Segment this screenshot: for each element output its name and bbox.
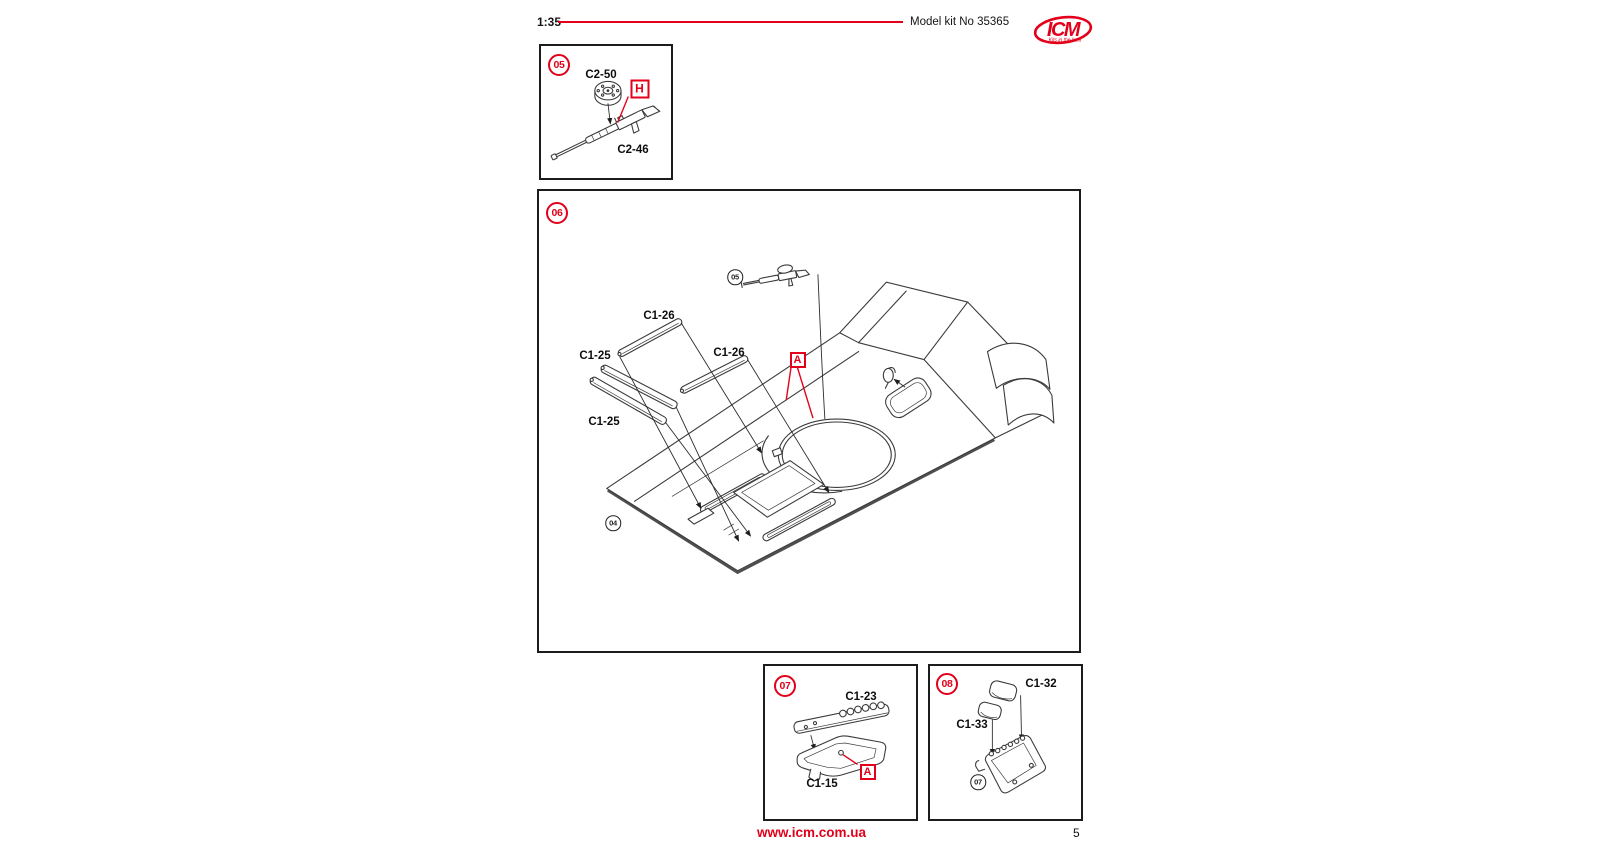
machine-gun-part — [548, 99, 663, 170]
step-number-badge-07: 07 — [774, 675, 796, 697]
part-label-c1-32: C1-32 — [1025, 678, 1056, 690]
step-08-panel: 08 C1-32 C1-33 07 — [928, 664, 1083, 821]
strip-part-c1-26-right — [679, 355, 749, 395]
part-label-c1-26-top: C1-26 — [643, 310, 674, 322]
assembly-arrow — [608, 103, 610, 123]
option-marker-a: A — [790, 352, 806, 368]
step-05-panel: 05 C2-50 H C2-46 — [539, 44, 673, 180]
assembly-arrow-1 — [1021, 695, 1022, 740]
tread-plate-part — [792, 700, 890, 734]
icm-logo-tagline: Kits in the best — [1049, 38, 1082, 44]
step-06-drawing — [539, 191, 1079, 651]
part-label-c2-50: C2-50 — [585, 69, 616, 81]
drum-magazine-part — [595, 81, 621, 105]
kit-number-label: Model kit No 35365 — [910, 16, 1009, 28]
ref-step-badge-07: 07 — [970, 774, 986, 790]
step-07-panel: 07 C1-23 A C1-15 — [763, 664, 918, 821]
header-rule — [558, 21, 903, 23]
part-label-c1-25-left: C1-25 — [579, 350, 610, 362]
strip-part-c1-26-top — [616, 317, 683, 357]
part-label-c1-15: C1-15 — [806, 778, 837, 790]
part-label-c1-26-right: C1-26 — [713, 347, 744, 359]
seat-subassembly-drawing — [976, 736, 1046, 793]
step-number-badge-06: 06 — [546, 202, 568, 224]
gun-subassembly-drawing — [740, 261, 811, 295]
option-marker-h: H — [630, 79, 649, 98]
icm-logo: ICM Kits in the best — [1032, 7, 1094, 47]
part-label-c1-33: C1-33 — [956, 719, 987, 731]
step-number-badge-08: 08 — [936, 673, 958, 695]
step-number-badge-05: 05 — [548, 54, 570, 76]
ref-step-badge-04: 04 — [605, 515, 621, 531]
page-number: 5 — [1073, 826, 1080, 840]
cushion-part-c1-33 — [977, 701, 1002, 721]
step-06-panel: 06 05 C1-26 C1-25 C1-26 C1-25 A 04 — [537, 189, 1081, 653]
website-label: www.icm.com.ua — [757, 825, 866, 840]
ref-step-badge-05: 05 — [727, 269, 743, 285]
instruction-page: 1:35 Model kit No 35365 ICM Kits in the … — [0, 0, 1620, 851]
option-marker-a: A — [860, 764, 876, 780]
part-label-c2-46: C2-46 — [617, 144, 648, 156]
part-label-c1-25-bottom: C1-25 — [588, 416, 619, 428]
cushion-part-c1-32 — [988, 680, 1018, 702]
part-label-c1-23: C1-23 — [845, 691, 876, 703]
